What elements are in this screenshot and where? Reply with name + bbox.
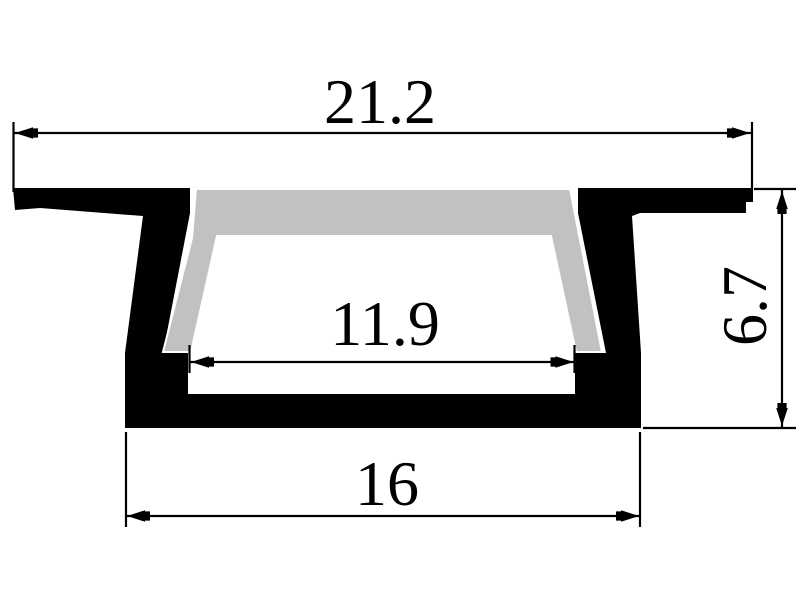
dimension-value-height: 6.7 bbox=[709, 266, 780, 346]
dimension-value-opening-width: 11.9 bbox=[330, 288, 440, 359]
dimension-value-overall-width: 21.2 bbox=[324, 66, 436, 137]
arrowhead-left-icon bbox=[127, 510, 150, 522]
arrowhead-right-icon bbox=[551, 356, 574, 368]
dimension-height: 6.7 bbox=[643, 189, 796, 428]
dimension-value-base-width: 16 bbox=[355, 448, 419, 519]
dimension-opening-width: 11.9 bbox=[190, 288, 575, 373]
arrowhead-right-icon bbox=[727, 127, 750, 139]
profile-cross-section-drawing: 21.2 11.9 16 6.7 bbox=[0, 0, 800, 600]
arrowhead-down-icon bbox=[776, 403, 788, 426]
dimension-base-width: 16 bbox=[126, 432, 640, 527]
arrowhead-left-icon bbox=[15, 127, 38, 139]
technical-drawing-canvas: 21.2 11.9 16 6.7 bbox=[0, 0, 800, 600]
arrowhead-right-icon bbox=[616, 510, 639, 522]
arrowhead-left-icon bbox=[191, 356, 214, 368]
dimension-overall-width: 21.2 bbox=[14, 66, 753, 192]
arrowhead-up-icon bbox=[776, 191, 788, 214]
